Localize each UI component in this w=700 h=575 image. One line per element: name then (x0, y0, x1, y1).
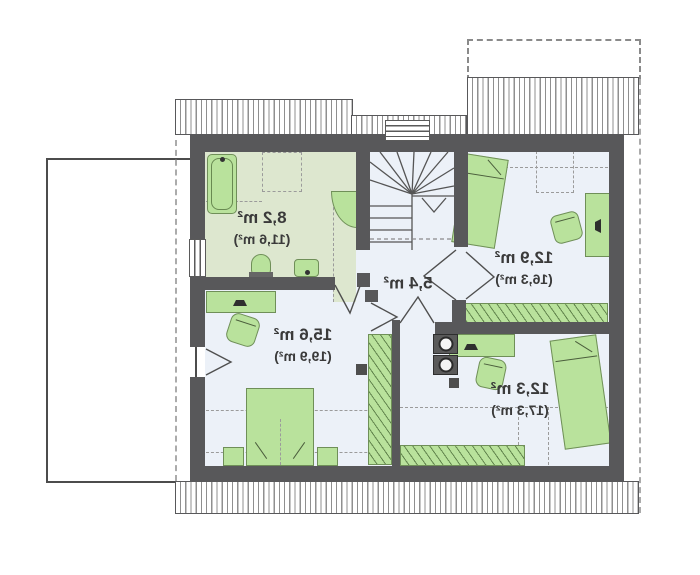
room-area-net: 15,6 m² (274, 324, 333, 347)
room-area-net: 12,3 m² (491, 378, 550, 401)
door-swing-room-top-right-out (466, 252, 494, 299)
room-area-gross: (11,6 m²) (234, 230, 291, 249)
room-label-bathroom: 8,2 m² (11,6 m²) (234, 207, 291, 249)
door-swing-room-bottom-left (371, 303, 397, 331)
floor-plan: 8,2 m² (11,6 m²) 12,9 m² (16,3 m²) 5,4 m… (0, 0, 700, 575)
room-label-bottom-right: 12,3 m² (17,3 m²) (491, 378, 550, 420)
room-label-top-right: 12,9 m² (16,3 m²) (495, 247, 554, 289)
room-label-bottom-left: 15,6 m² (19,9 m²) (274, 324, 333, 366)
door-swing-balcony (206, 349, 231, 375)
room-label-hall: 5,4 m² (383, 273, 432, 296)
room-area-net: 12,9 m² (495, 247, 554, 270)
room-area-gross: (17,3 m²) (491, 401, 550, 420)
room-area-gross: (16,3 m²) (495, 270, 554, 289)
door-swing-room-bottom-right (400, 297, 434, 323)
door-swing-bathroom (335, 285, 360, 313)
door-swings (0, 0, 700, 575)
room-area-gross: (19,9 m²) (274, 347, 333, 366)
room-area-net: 8,2 m² (234, 207, 291, 230)
room-area-net: 5,4 m² (383, 273, 432, 296)
